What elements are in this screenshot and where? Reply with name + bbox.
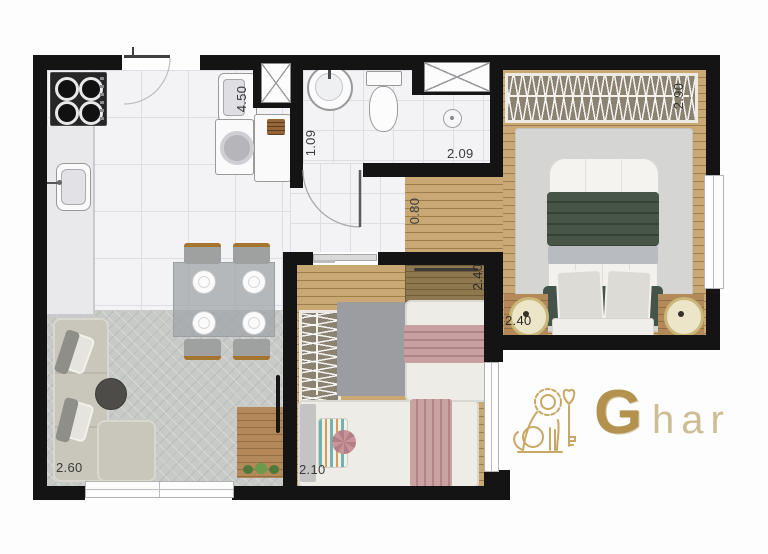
plate-inner	[248, 276, 260, 288]
bedroom2-rug	[337, 302, 407, 396]
stove-knobs	[100, 77, 104, 121]
plant	[243, 463, 279, 476]
window-frame	[713, 176, 714, 288]
wall	[378, 252, 484, 265]
washing-machine	[215, 119, 254, 175]
faucet-icon	[57, 180, 62, 185]
dim-bedroom2-length: 2.40	[470, 257, 484, 297]
wall	[706, 55, 720, 175]
plate	[192, 311, 216, 335]
dim-hall: 0.80	[407, 191, 421, 231]
single-bed-vertical	[405, 300, 489, 402]
washer-drum	[220, 131, 254, 165]
lion-key-icon	[506, 380, 590, 462]
sink-basin	[61, 169, 86, 205]
floor-plan: 4.50 1.09 2.09 0.80 2.90 2.40 2.40 2.10 …	[0, 0, 768, 554]
toilet-tank	[366, 71, 402, 86]
dining-chair	[233, 243, 270, 264]
wall	[33, 55, 47, 500]
dim-bath-width: 1.09	[303, 123, 317, 163]
dining-chair	[184, 243, 221, 264]
sofa-chaise	[97, 420, 156, 482]
table-lamp	[664, 297, 704, 337]
sliding-door	[313, 260, 335, 263]
duct-shaft	[424, 62, 490, 92]
kitchen-counter	[47, 126, 95, 316]
pink-blanket	[410, 399, 452, 487]
plate-inner	[248, 317, 260, 329]
wardrobe-rod	[316, 313, 318, 395]
duct-shaft	[261, 63, 291, 103]
burner-icon	[55, 101, 79, 125]
bed-blanket-green	[547, 192, 659, 246]
bed-silver-band	[548, 246, 658, 264]
dining-chair	[233, 339, 270, 360]
master-door-threshold	[490, 177, 503, 252]
plant-leaf	[269, 465, 279, 474]
wall	[33, 486, 85, 500]
wall	[497, 335, 720, 350]
master-wardrobe	[505, 73, 698, 123]
toilet-bowl	[369, 86, 398, 132]
entrance-door-handle	[132, 47, 134, 56]
double-bed	[549, 158, 657, 338]
wall	[283, 252, 297, 486]
logo-text: har	[652, 400, 731, 440]
wall	[297, 252, 313, 265]
closet-rail	[414, 268, 478, 271]
plate	[192, 270, 216, 294]
window	[704, 175, 724, 289]
wall	[484, 470, 510, 500]
dim-master-length: 2.90	[671, 76, 685, 116]
plate-inner	[198, 317, 210, 329]
laundry-cabinet	[254, 114, 291, 182]
wall	[484, 252, 503, 362]
wardrobe-rod	[508, 95, 689, 97]
dim-laundry: 4.50	[234, 79, 248, 119]
plant-leaf	[255, 463, 267, 474]
window-frame	[491, 363, 492, 471]
dim-bath-length: 2.09	[447, 146, 474, 161]
dim-master-width: 2.40	[505, 313, 532, 328]
window	[484, 362, 499, 472]
window-frame	[159, 482, 160, 497]
brand-logo: G har	[500, 376, 730, 466]
stove	[50, 72, 107, 126]
kitchen-sink	[56, 163, 91, 211]
plate	[242, 311, 266, 335]
dining-chair	[184, 339, 221, 360]
rose-cushion	[332, 430, 356, 454]
window	[85, 481, 234, 498]
lamp-center	[678, 311, 684, 317]
bathroom-sink	[307, 65, 353, 111]
bedroom2-wardrobe	[299, 310, 341, 404]
wall	[363, 163, 503, 177]
plant-leaf	[243, 465, 253, 474]
logo-initial: G	[594, 382, 642, 444]
entrance-door	[124, 55, 170, 58]
pink-blanket	[404, 325, 488, 363]
toilet	[366, 71, 400, 133]
drain-dot	[450, 116, 454, 120]
plate-inner	[198, 276, 210, 288]
basket	[267, 119, 285, 135]
tv	[276, 375, 280, 433]
plate	[242, 270, 266, 294]
dim-bedroom2-width: 2.10	[299, 462, 326, 477]
burner-icon	[55, 77, 79, 101]
coffee-table	[95, 378, 127, 410]
wall	[232, 486, 497, 500]
shower-drain	[443, 109, 462, 128]
dim-living: 2.60	[56, 460, 83, 475]
